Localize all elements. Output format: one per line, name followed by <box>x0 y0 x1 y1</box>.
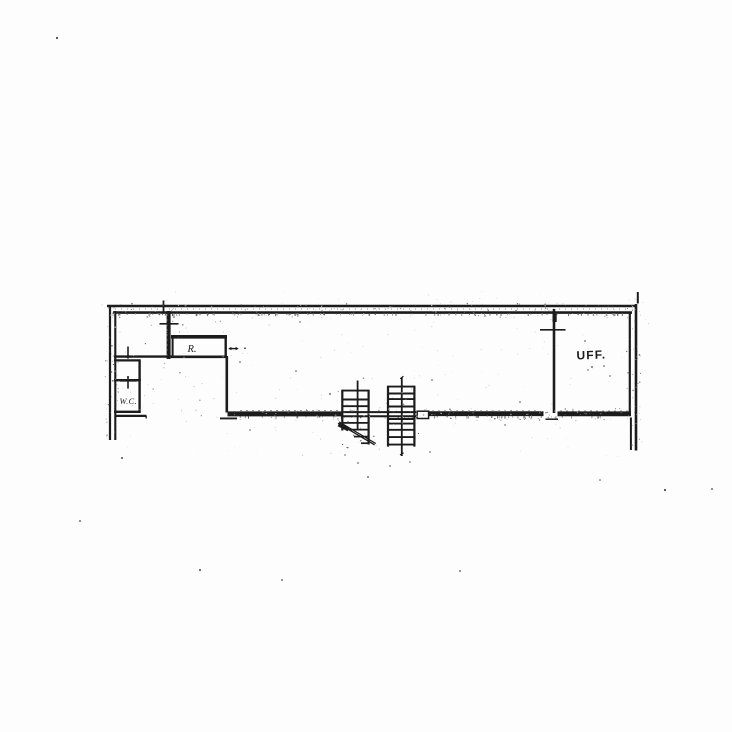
svg-text:R.: R. <box>187 344 197 355</box>
svg-text:W.C.: W.C. <box>120 396 137 406</box>
svg-text:UFF.: UFF. <box>576 348 606 363</box>
